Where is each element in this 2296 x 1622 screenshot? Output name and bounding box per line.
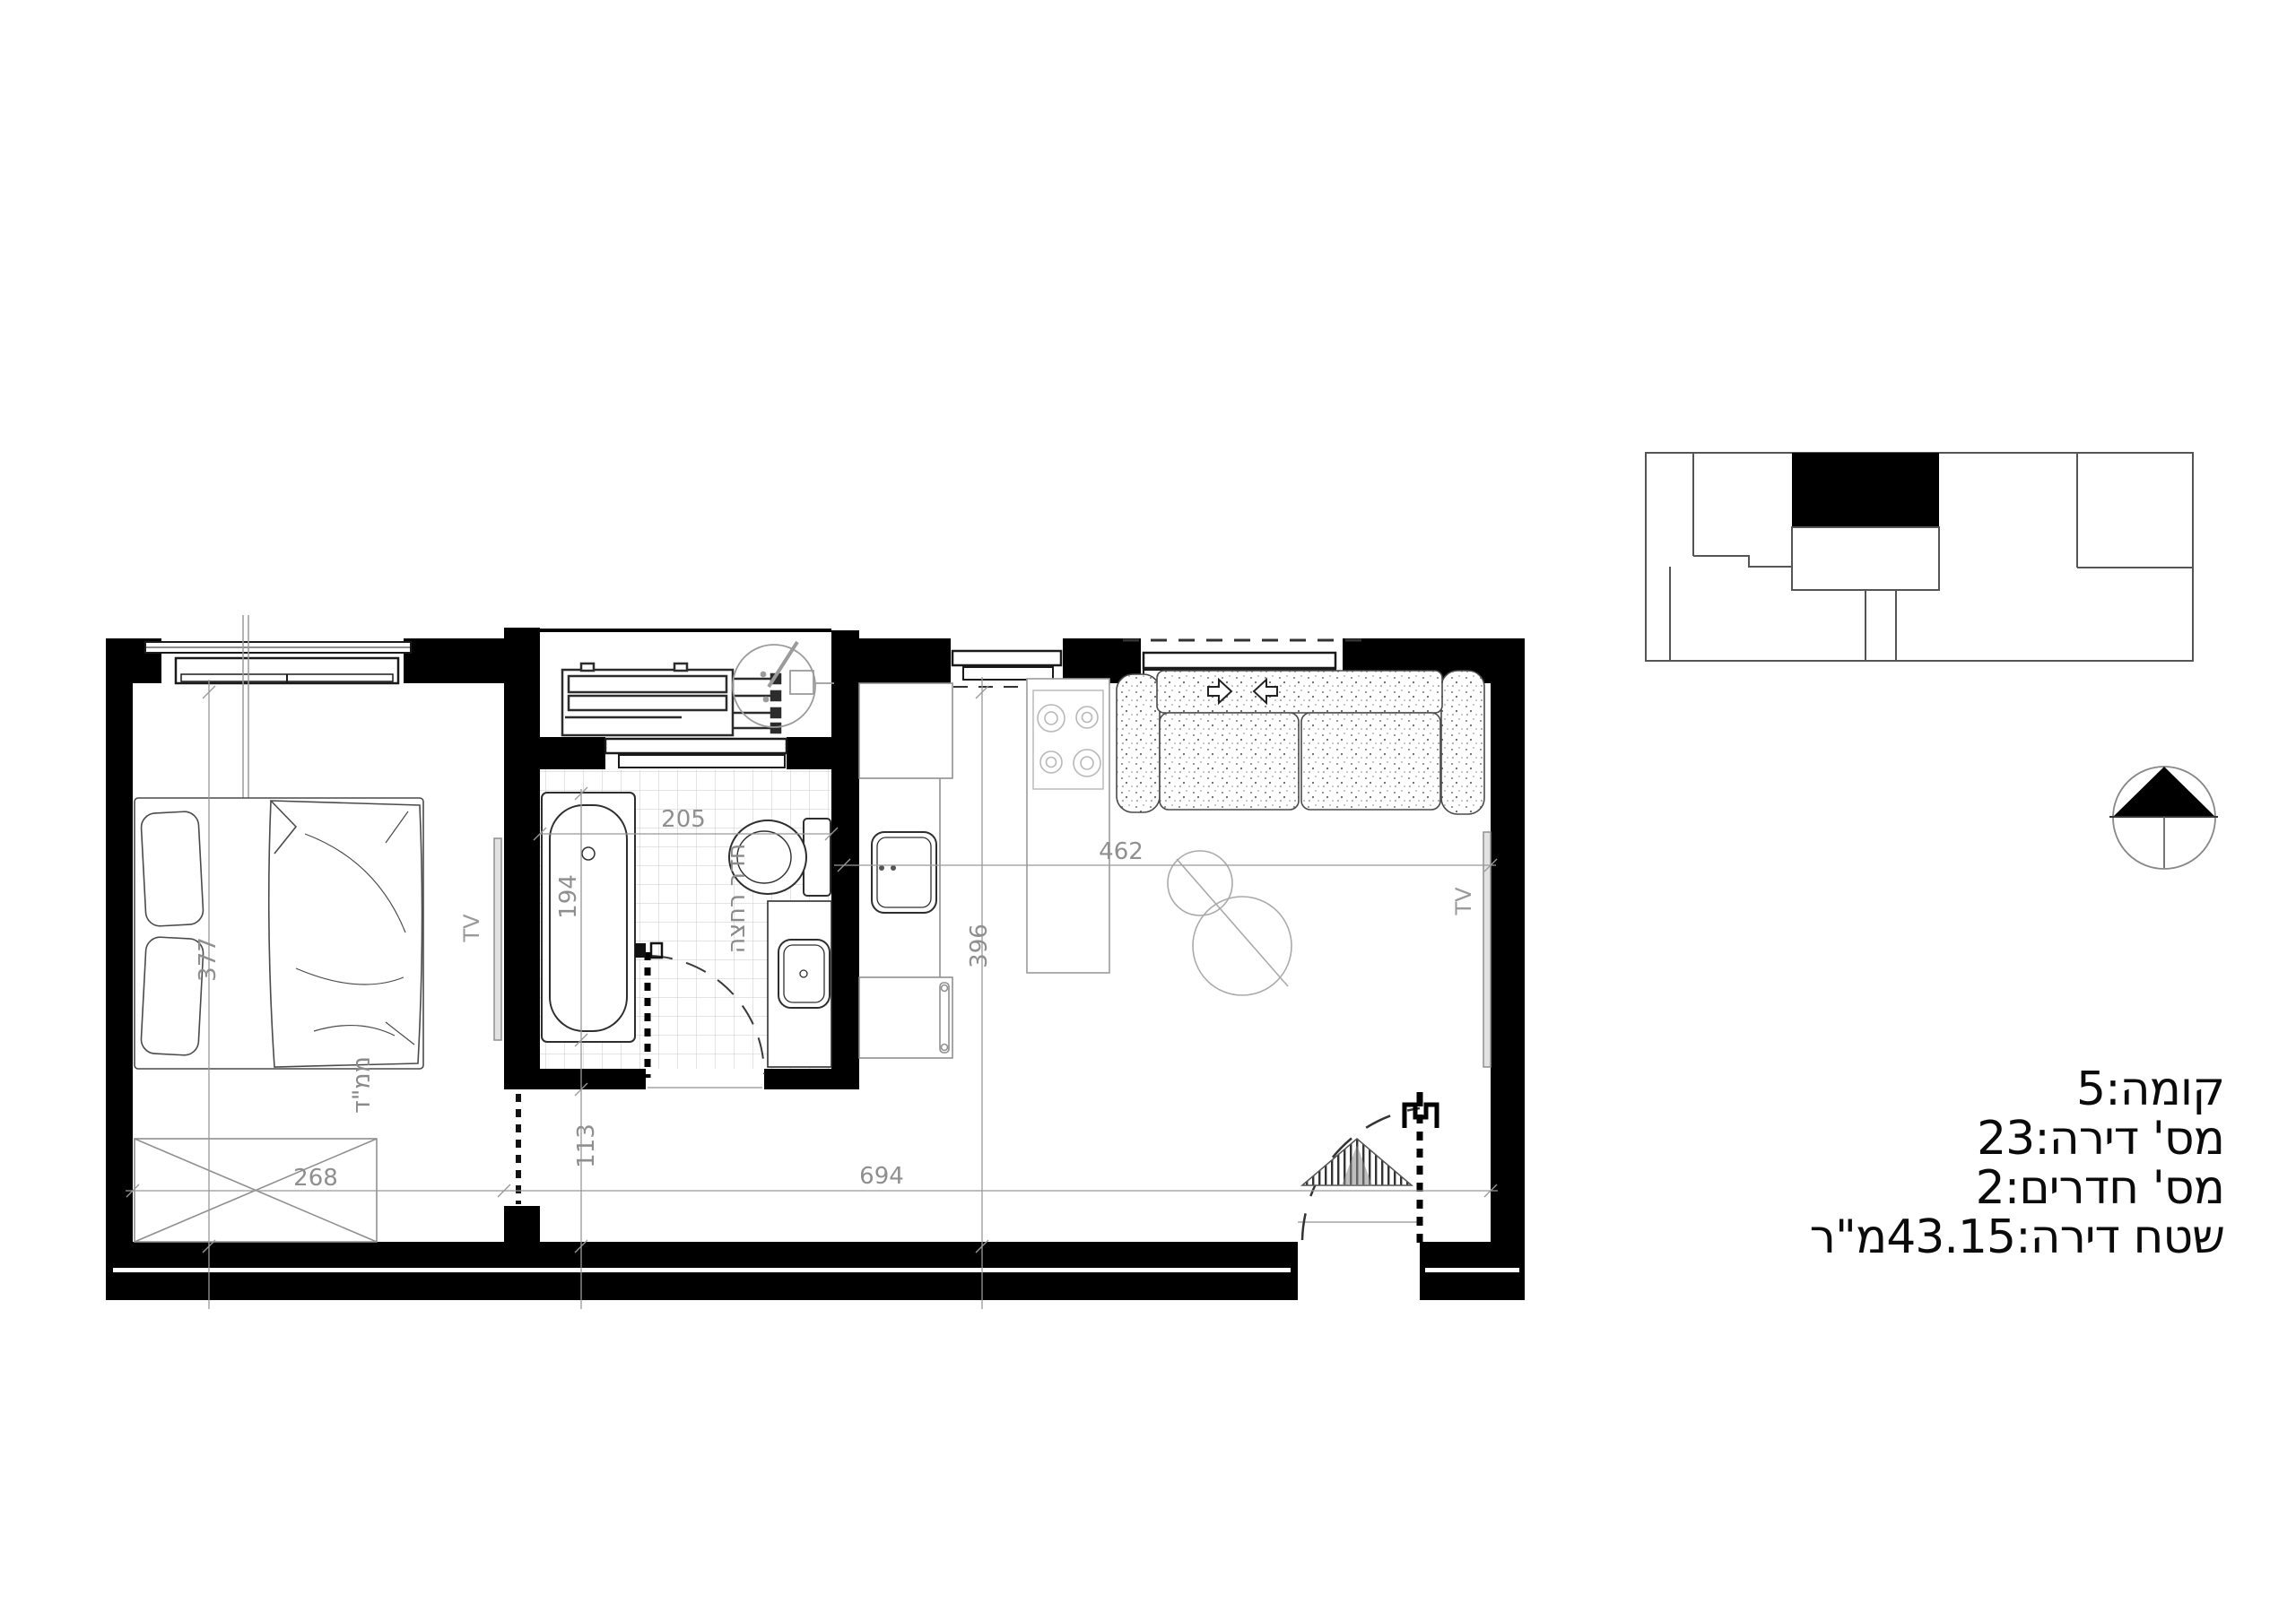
wall-right	[1491, 638, 1525, 1300]
wall-joint-line-b	[1425, 1268, 1519, 1272]
sofa	[1117, 671, 1484, 814]
dim-hallway-width: 113	[573, 1123, 600, 1168]
sofa-arm-right	[1441, 671, 1484, 814]
dim-bathroom-width: 205	[661, 806, 706, 833]
washing-machine	[733, 642, 834, 727]
apartment-info-panel: קומה:5 מס' דירה:23 מס' חדרים:2 שטח דירה:…	[1543, 1065, 2224, 1262]
dim-bedroom-length: 377	[195, 937, 222, 982]
wall-bedroom-separating-upper	[504, 628, 540, 1089]
north-arrow-icon	[2109, 767, 2218, 869]
kitchen-upper-cabinet	[859, 683, 952, 778]
bathroom-window	[605, 739, 787, 768]
key-plan-apartment-highlight	[1792, 453, 1939, 527]
bathroom-label: חדר רחצה	[723, 844, 751, 954]
info-apartment-number: מס' דירה:23	[1543, 1115, 2224, 1164]
bedroom-tv-label: TV	[459, 914, 484, 943]
bedroom-tv	[494, 838, 501, 1040]
dim-living-width: 462	[1099, 838, 1144, 865]
wall-bath-living	[831, 630, 859, 1088]
wall-bath-bottom-b	[764, 1069, 859, 1089]
living-tv-label: TV	[1451, 887, 1476, 916]
coffee-tables	[1168, 851, 1291, 995]
info-area: שטח דירה:43.15מ"ר	[1543, 1213, 2224, 1262]
dim-bathtub-length: 194	[555, 874, 582, 919]
dim-bedroom-width: 268	[293, 1165, 338, 1192]
info-floor: קומה:5	[1543, 1065, 2224, 1115]
sofa-arm-left	[1117, 674, 1160, 812]
toilet-tank	[804, 819, 831, 896]
wall-bath-top-a	[540, 737, 605, 769]
dim-living-length: 396	[966, 924, 993, 968]
double-bed	[135, 798, 423, 1069]
kitchen-counter	[859, 683, 952, 1058]
kitchen-island	[1027, 679, 1109, 973]
floor-plan-page: TV ממ"ד	[0, 0, 2296, 1622]
pillow-1	[141, 811, 204, 926]
coffee-table-large	[1193, 897, 1291, 995]
key-plan-apartment-below	[1792, 527, 1939, 590]
sofa-seat-2	[1301, 713, 1440, 810]
drying-rack	[562, 664, 780, 735]
apartment-floor-plan: TV ממ"ד	[0, 0, 2296, 1622]
living-tv	[1483, 832, 1491, 1067]
info-rooms: מס' חדרים:2	[1543, 1164, 2224, 1213]
wall-joint-line-a	[113, 1268, 1291, 1272]
refrigerator-handle	[940, 983, 949, 1053]
bedroom-window	[145, 642, 411, 683]
key-plan	[1646, 453, 2193, 661]
sofa-seat-1	[1160, 713, 1299, 810]
entry-door	[1298, 1092, 1437, 1245]
dim-apartment-width: 694	[859, 1163, 904, 1190]
sofa-back	[1157, 671, 1442, 713]
wall-top-kitchen	[831, 638, 951, 683]
bathroom-sink	[768, 901, 831, 1067]
blanket	[269, 801, 422, 1067]
wall-left	[106, 638, 133, 1300]
wall-bath-bottom-a	[540, 1069, 646, 1089]
shelter-label: ממ"ד	[348, 1056, 376, 1114]
refrigerator	[859, 977, 952, 1058]
wall-top-bedroom-b	[404, 638, 504, 683]
wall-bedroom-separating-lower	[504, 1206, 540, 1246]
wall-bath-top-b	[787, 737, 859, 769]
